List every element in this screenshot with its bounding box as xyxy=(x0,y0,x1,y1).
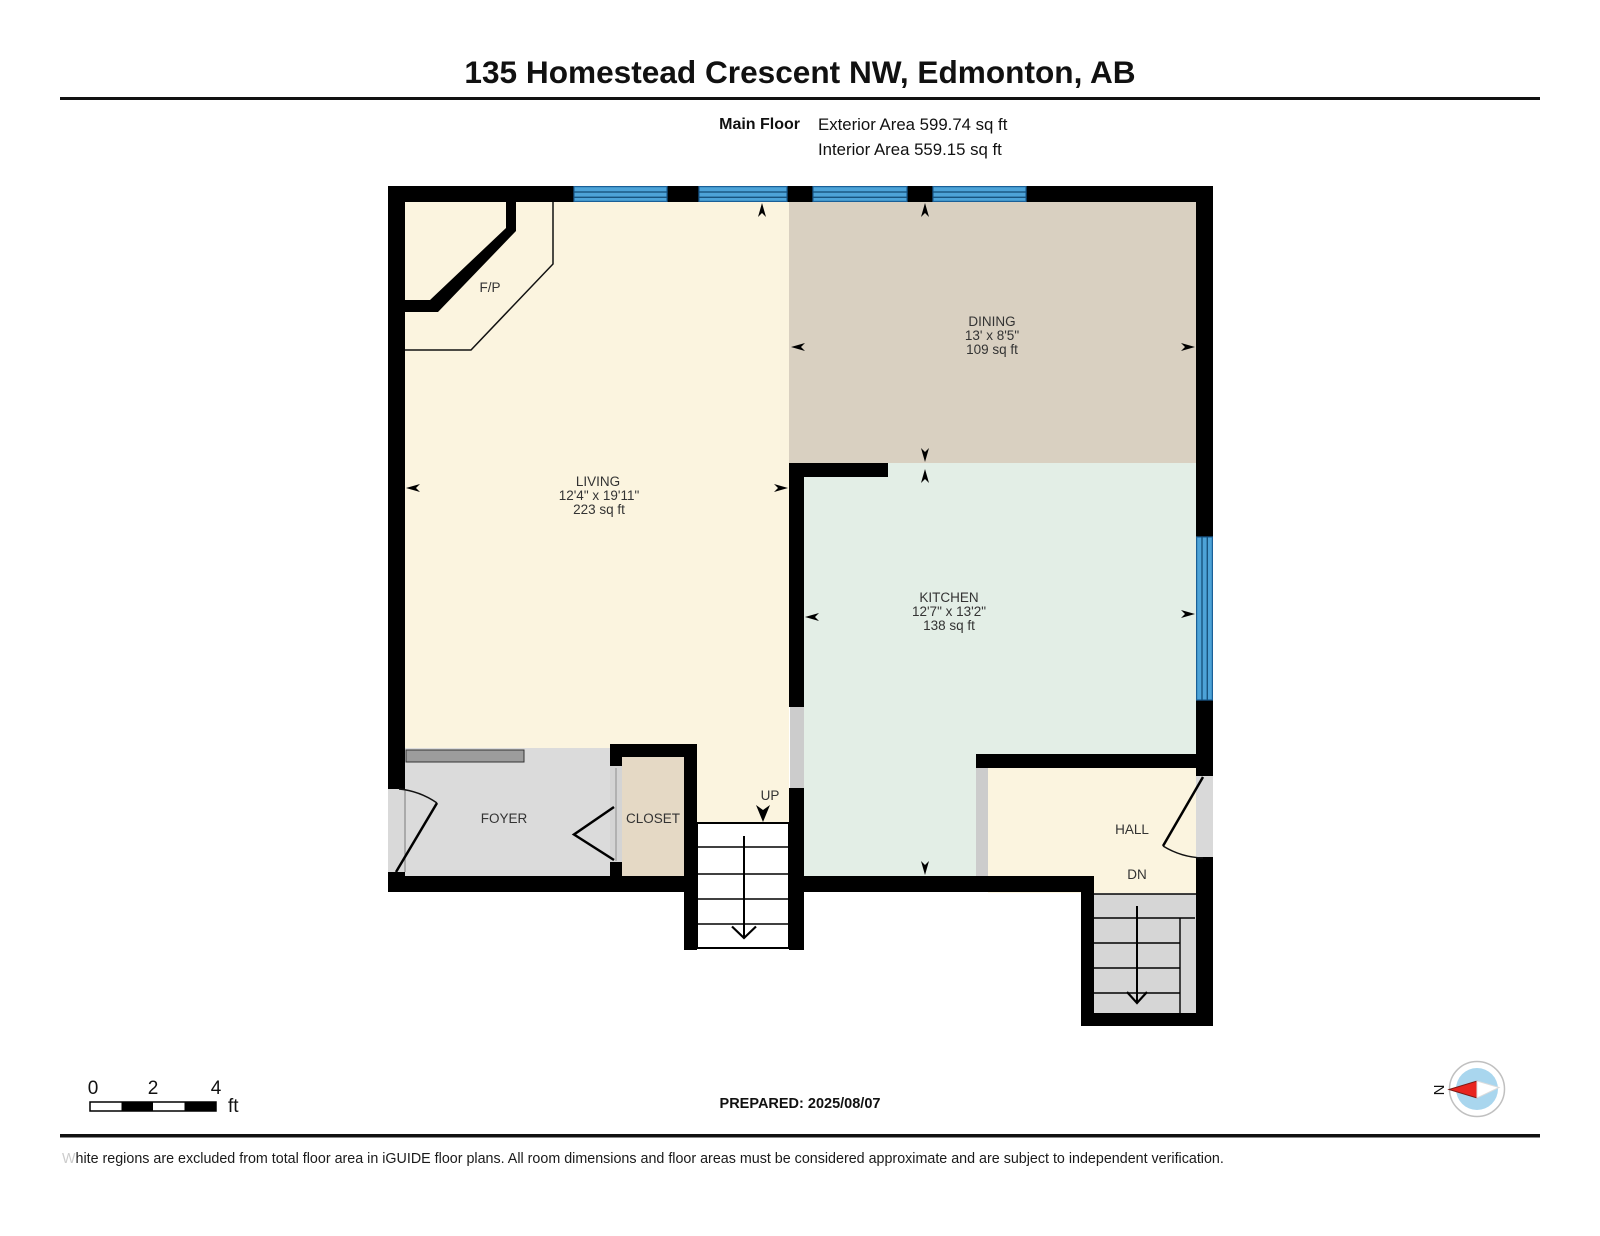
svg-text:ft: ft xyxy=(228,1096,239,1117)
svg-text:2: 2 xyxy=(148,1078,159,1099)
svg-text:12'4" x 19'11": 12'4" x 19'11" xyxy=(559,488,640,503)
svg-text:F/P: F/P xyxy=(479,280,500,295)
svg-text:N: N xyxy=(1431,1085,1448,1096)
svg-text:KITCHEN: KITCHEN xyxy=(919,590,978,605)
svg-text:4: 4 xyxy=(211,1078,222,1099)
svg-text:White regions are excluded fro: White regions are excluded from total fl… xyxy=(62,1151,1224,1167)
svg-text:FOYER: FOYER xyxy=(481,811,528,826)
svg-text:13' x 8'5": 13' x 8'5" xyxy=(965,328,1019,343)
svg-text:12'7" x 13'2": 12'7" x 13'2" xyxy=(912,604,986,619)
svg-text:CLOSET: CLOSET xyxy=(626,811,680,826)
svg-text:DINING: DINING xyxy=(968,314,1015,329)
svg-text:LIVING: LIVING xyxy=(576,474,620,489)
svg-text:UP: UP xyxy=(761,788,780,803)
svg-text:HALL: HALL xyxy=(1115,822,1149,837)
svg-text:0: 0 xyxy=(88,1078,99,1099)
svg-text:109 sq ft: 109 sq ft xyxy=(966,342,1018,357)
svg-text:DN: DN xyxy=(1127,867,1147,882)
svg-text:223 sq ft: 223 sq ft xyxy=(573,502,625,517)
svg-text:PREPARED: 2025/08/07: PREPARED: 2025/08/07 xyxy=(720,1096,881,1112)
svg-text:138 sq ft: 138 sq ft xyxy=(923,618,975,633)
